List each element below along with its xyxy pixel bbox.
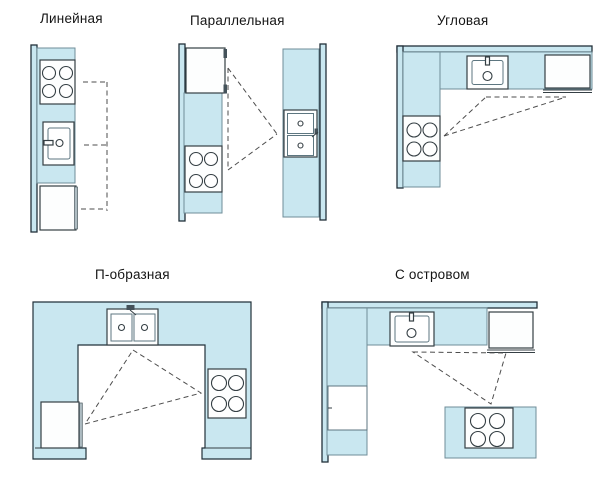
double-sink-icon: [107, 305, 158, 345]
diagram-parallel-title: Параллельная: [190, 13, 285, 28]
work-path-dashed: [81, 82, 107, 211]
diagram-parallel: Параллельная: [175, 5, 331, 225]
diagram-u-shaped: П-образная: [30, 266, 255, 466]
work-triangle-dashed: [444, 97, 566, 136]
diagram-corner: Угловая: [393, 5, 598, 192]
stove-icon: [465, 408, 513, 448]
counter-left: [327, 308, 367, 455]
work-triangle-dashed: [228, 68, 277, 170]
diagram-corner-plan: [393, 40, 598, 192]
diagram-linear-title: Линейная: [40, 11, 103, 26]
diagram-island: С островом: [320, 266, 540, 466]
sink-icon: [43, 122, 74, 165]
wall-right: [320, 44, 326, 220]
refrigerator-icon: [40, 186, 78, 230]
stove-icon: [403, 116, 440, 161]
work-triangle-dashed: [413, 352, 506, 404]
diagram-island-plan: [320, 300, 540, 466]
refrigerator-icon: [543, 55, 592, 93]
double-sink-icon: [284, 110, 318, 157]
diagram-corner-title: Угловая: [437, 13, 488, 28]
wall-top: [397, 46, 592, 52]
diagram-u-shaped-plan: [30, 300, 255, 466]
kitchen-layouts-figure: Линейная Параллельная: [0, 0, 609, 494]
wall-left: [397, 46, 403, 188]
wall: [31, 45, 37, 232]
diagram-linear: Линейная: [28, 5, 118, 236]
diagram-island-title: С островом: [395, 267, 470, 282]
sink-icon: [467, 56, 508, 89]
work-triangle-dashed: [85, 350, 201, 424]
wall-top: [322, 302, 537, 308]
refrigerator-icon: [186, 48, 227, 94]
diagram-parallel-plan: [175, 40, 330, 225]
cabinet-icon: [328, 386, 367, 430]
stove-icon: [185, 146, 222, 192]
refrigerator-icon: [487, 312, 535, 353]
stove-icon: [40, 60, 75, 104]
stove-icon: [208, 369, 246, 418]
sink-icon: [390, 312, 434, 346]
diagram-linear-plan: [28, 40, 118, 236]
refrigerator-icon: [41, 402, 82, 448]
diagram-u-shaped-title: П-образная: [95, 267, 170, 282]
